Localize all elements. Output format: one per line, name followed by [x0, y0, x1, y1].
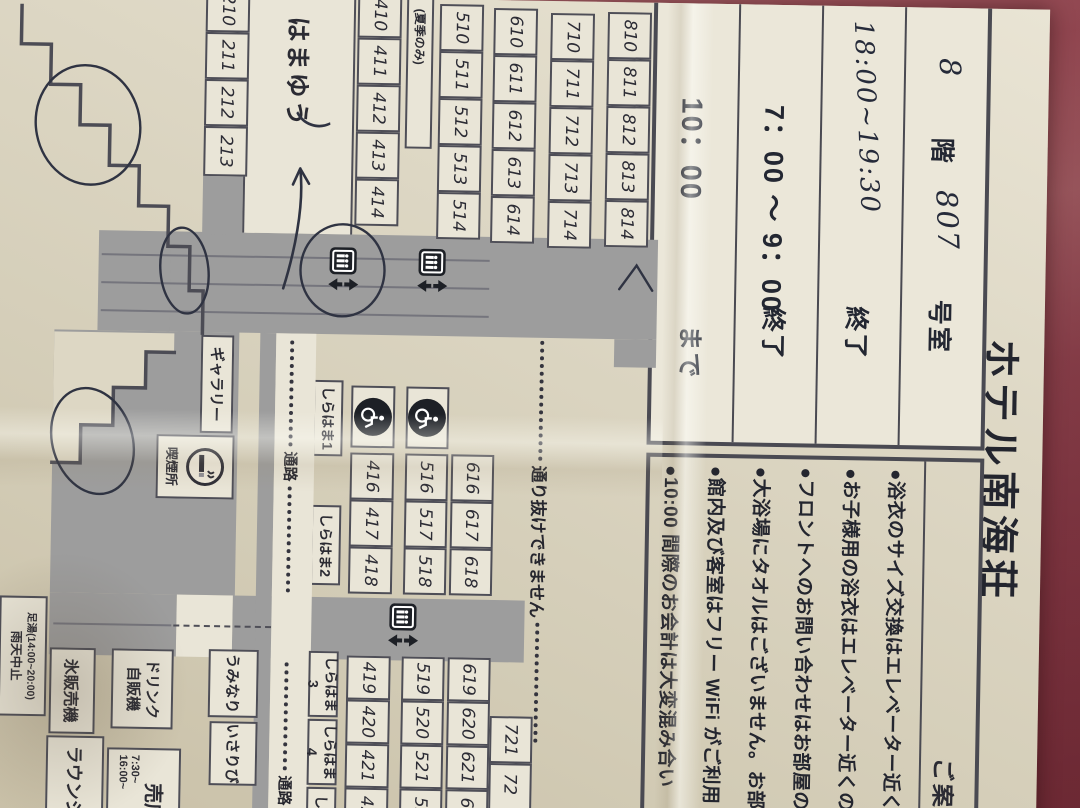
room-cell: 412 — [356, 85, 401, 133]
guide-header-band: ご案内 — [917, 462, 981, 808]
drink-vending-label-1: ドリンク — [142, 659, 162, 719]
drink-vending-box: ドリンク 自販機 — [110, 648, 173, 729]
passage-line-mid: 通路 — [278, 340, 303, 592]
no-through-label: 通り抜けできません — [525, 465, 553, 618]
room-cell: 812 — [606, 106, 651, 154]
guest-info-table: 8 階 807 号室 18:00~19:30 終了 7：00 〜 9：00 終了… — [647, 0, 994, 451]
handwritten-paren: ） — [278, 107, 342, 161]
dotted-leader — [534, 623, 540, 743]
room-cell: 212 — [204, 79, 249, 127]
shop-hours-morning: 7:30~ — [129, 755, 141, 784]
shirahama-room: しらはま4 — [307, 719, 338, 786]
wheelchair-icon — [354, 398, 393, 437]
checkout-time: 10：00 — [672, 97, 716, 201]
room-cell: 513 — [437, 145, 482, 193]
shop-hours-evening: 16:00~ — [117, 754, 130, 789]
checkout-until-label: まで — [673, 325, 710, 380]
smoking-icon — [184, 446, 227, 489]
room-cell: 416 — [350, 453, 395, 501]
passage-label: 通路 — [274, 775, 296, 805]
dotted-leader — [289, 340, 295, 446]
dinner-end-label: 終了 — [839, 306, 876, 361]
guide-header: ご案内 — [927, 758, 962, 808]
room-cell: 519 — [401, 656, 445, 701]
uminari-room: うみなり — [208, 649, 259, 718]
isaribi-room: いさりび — [208, 721, 257, 786]
room-cell-clipped: 72 — [488, 763, 532, 808]
guide-box: ご案内 ●浴衣のサイズ交換はエレベーター近くの ●お子様用の浴衣はエレベーター近… — [639, 453, 985, 808]
room-cell: 721 — [489, 716, 533, 764]
elevator-icon — [416, 248, 449, 297]
room-cell: 621 — [445, 745, 489, 790]
ice-vending-box: 氷販売機 — [48, 647, 95, 734]
drink-vending-label-2: 自販機 — [123, 666, 143, 711]
passage-label: 通路 — [280, 451, 302, 481]
room-cell: 514 — [436, 192, 481, 240]
room-cell: 710 — [550, 13, 595, 61]
floor-label: 階 — [925, 138, 961, 166]
footbath-box: 足湯(14:00~20:00) 雨天中止 — [0, 595, 48, 716]
breakfast-time: 7：00 〜 9：00 — [754, 105, 797, 314]
floor-number-handwritten: 8 — [933, 57, 968, 79]
room-cell: 411 — [357, 38, 402, 86]
room-cell: 516 — [404, 453, 448, 501]
room-cell: 610 — [493, 8, 538, 56]
room-cell: 711 — [549, 60, 594, 108]
footbath-rain-note: 雨天中止 — [7, 631, 23, 681]
room-cell: 211 — [205, 32, 250, 80]
gallery-box: ギャラリー — [200, 335, 235, 434]
room-number-handwritten: 807 — [929, 189, 965, 252]
room-cell: 713 — [548, 154, 593, 202]
room-cell-clipped: 62 — [445, 789, 489, 808]
room-cell: 712 — [549, 107, 594, 155]
shirahama-room: しらはま1 — [312, 380, 343, 457]
photo-stage: ホテル南海荘 8 階 807 号室 18:00~19:30 終了 7：00 〜 … — [0, 0, 1080, 808]
corridor-step-notch — [614, 339, 656, 368]
table-row-dinner: 18:00~19:30 終了 — [815, 0, 907, 445]
footbath-hours: 足湯(14:00~20:00) — [22, 612, 39, 700]
shop-label: 売店 — [140, 783, 170, 808]
room-cell: 512 — [438, 98, 483, 146]
room-cell-clipped: 52 — [399, 788, 443, 808]
room-cell: 611 — [492, 55, 537, 103]
shirahama-room: しらはま3 — [308, 651, 339, 718]
elevator-icon — [387, 602, 420, 651]
room-cell: 518 — [403, 547, 447, 595]
room-cell: 413 — [355, 132, 400, 180]
room-cell: 617 — [450, 501, 494, 549]
paper-position-wrap: ホテル南海荘 8 階 807 号室 18:00~19:30 終了 7：00 〜 … — [0, 0, 1043, 808]
elevator-icon — [327, 246, 360, 295]
dotted-leader — [286, 486, 292, 592]
breakfast-end-label: 終了 — [756, 307, 793, 362]
room-cell: 419 — [346, 655, 391, 700]
room-cell: 620 — [446, 701, 490, 746]
room-label: 号室 — [922, 299, 959, 354]
room-cell: 510 — [439, 4, 484, 52]
room-cell: 410 — [358, 0, 403, 38]
room-cell: 521 — [399, 744, 443, 789]
room-cell: 213 — [203, 126, 248, 177]
wheelchair-icon — [408, 399, 447, 438]
room-cell: 614 — [490, 196, 535, 244]
accessible-room-cell — [350, 386, 395, 449]
shirahama-room: しらはま2 — [310, 505, 341, 586]
lounge-box: ラウンジ — [45, 735, 105, 808]
room-cell: 810 — [607, 12, 652, 60]
no-through-line: 通り抜けできません — [523, 341, 555, 743]
room-cell: 813 — [605, 153, 650, 201]
shirahama-room-clipped: し — [306, 787, 337, 808]
table-row-room: 8 階 807 号室 — [898, 0, 990, 447]
table-row-checkout: 10：00 まで — [649, 0, 741, 442]
room-cell: 517 — [404, 500, 448, 548]
smoking-area-box: 喫煙所 — [155, 434, 234, 499]
room-cell: 511 — [439, 51, 484, 99]
pen-circle-stairs-upper — [26, 56, 151, 194]
room-cell: 421 — [344, 743, 389, 788]
room-cell: 417 — [349, 500, 394, 548]
room-cell: 612 — [492, 102, 537, 150]
wheelchair-glyph — [414, 405, 440, 431]
room-cell: 619 — [447, 657, 491, 702]
corridor-connector-2f — [202, 176, 247, 235]
shop-box: 売店 7:30~ 16:00~ — [106, 747, 181, 808]
room-cell: 414 — [354, 179, 399, 227]
table-row-breakfast: 7：00 〜 9：00 終了 — [732, 0, 824, 444]
accessible-room-cell — [405, 386, 449, 449]
room-cell: 616 — [450, 454, 494, 502]
room-cell: 520 — [400, 700, 444, 745]
room-cell: 811 — [606, 59, 651, 107]
room-cell-clipped: 42 — [344, 787, 389, 808]
passage-line-right: 通路 — [274, 662, 298, 808]
room-cell: 613 — [491, 149, 536, 197]
room-cell: 814 — [604, 200, 649, 248]
wheelchair-glyph — [360, 404, 386, 430]
room-cell: 714 — [547, 201, 592, 249]
room-cell: 210 — [206, 0, 251, 33]
hamayu-hall: はまゆう ） — [242, 0, 356, 235]
smoking-label: 喫煙所 — [163, 447, 183, 486]
hotel-map-document: ホテル南海荘 8 階 807 号室 18:00~19:30 終了 7：00 〜 … — [0, 0, 1050, 808]
dotted-leader — [283, 662, 289, 770]
room-cell: 618 — [449, 548, 493, 596]
room-cell: 418 — [348, 547, 393, 595]
dotted-leader — [539, 341, 545, 461]
guide-bullet: ●10:00 間際のお会計は大変混み合い — [639, 465, 693, 808]
guide-bullet-list: ●浴衣のサイズ交換はエレベーター近くの ●お子様用の浴衣はエレベーター近くの ●… — [639, 465, 918, 808]
summer-only-note: (夏季のみ) — [405, 0, 435, 149]
dinner-time-handwritten: 18:00~19:30 — [848, 20, 885, 215]
room-cell: 420 — [345, 699, 390, 744]
